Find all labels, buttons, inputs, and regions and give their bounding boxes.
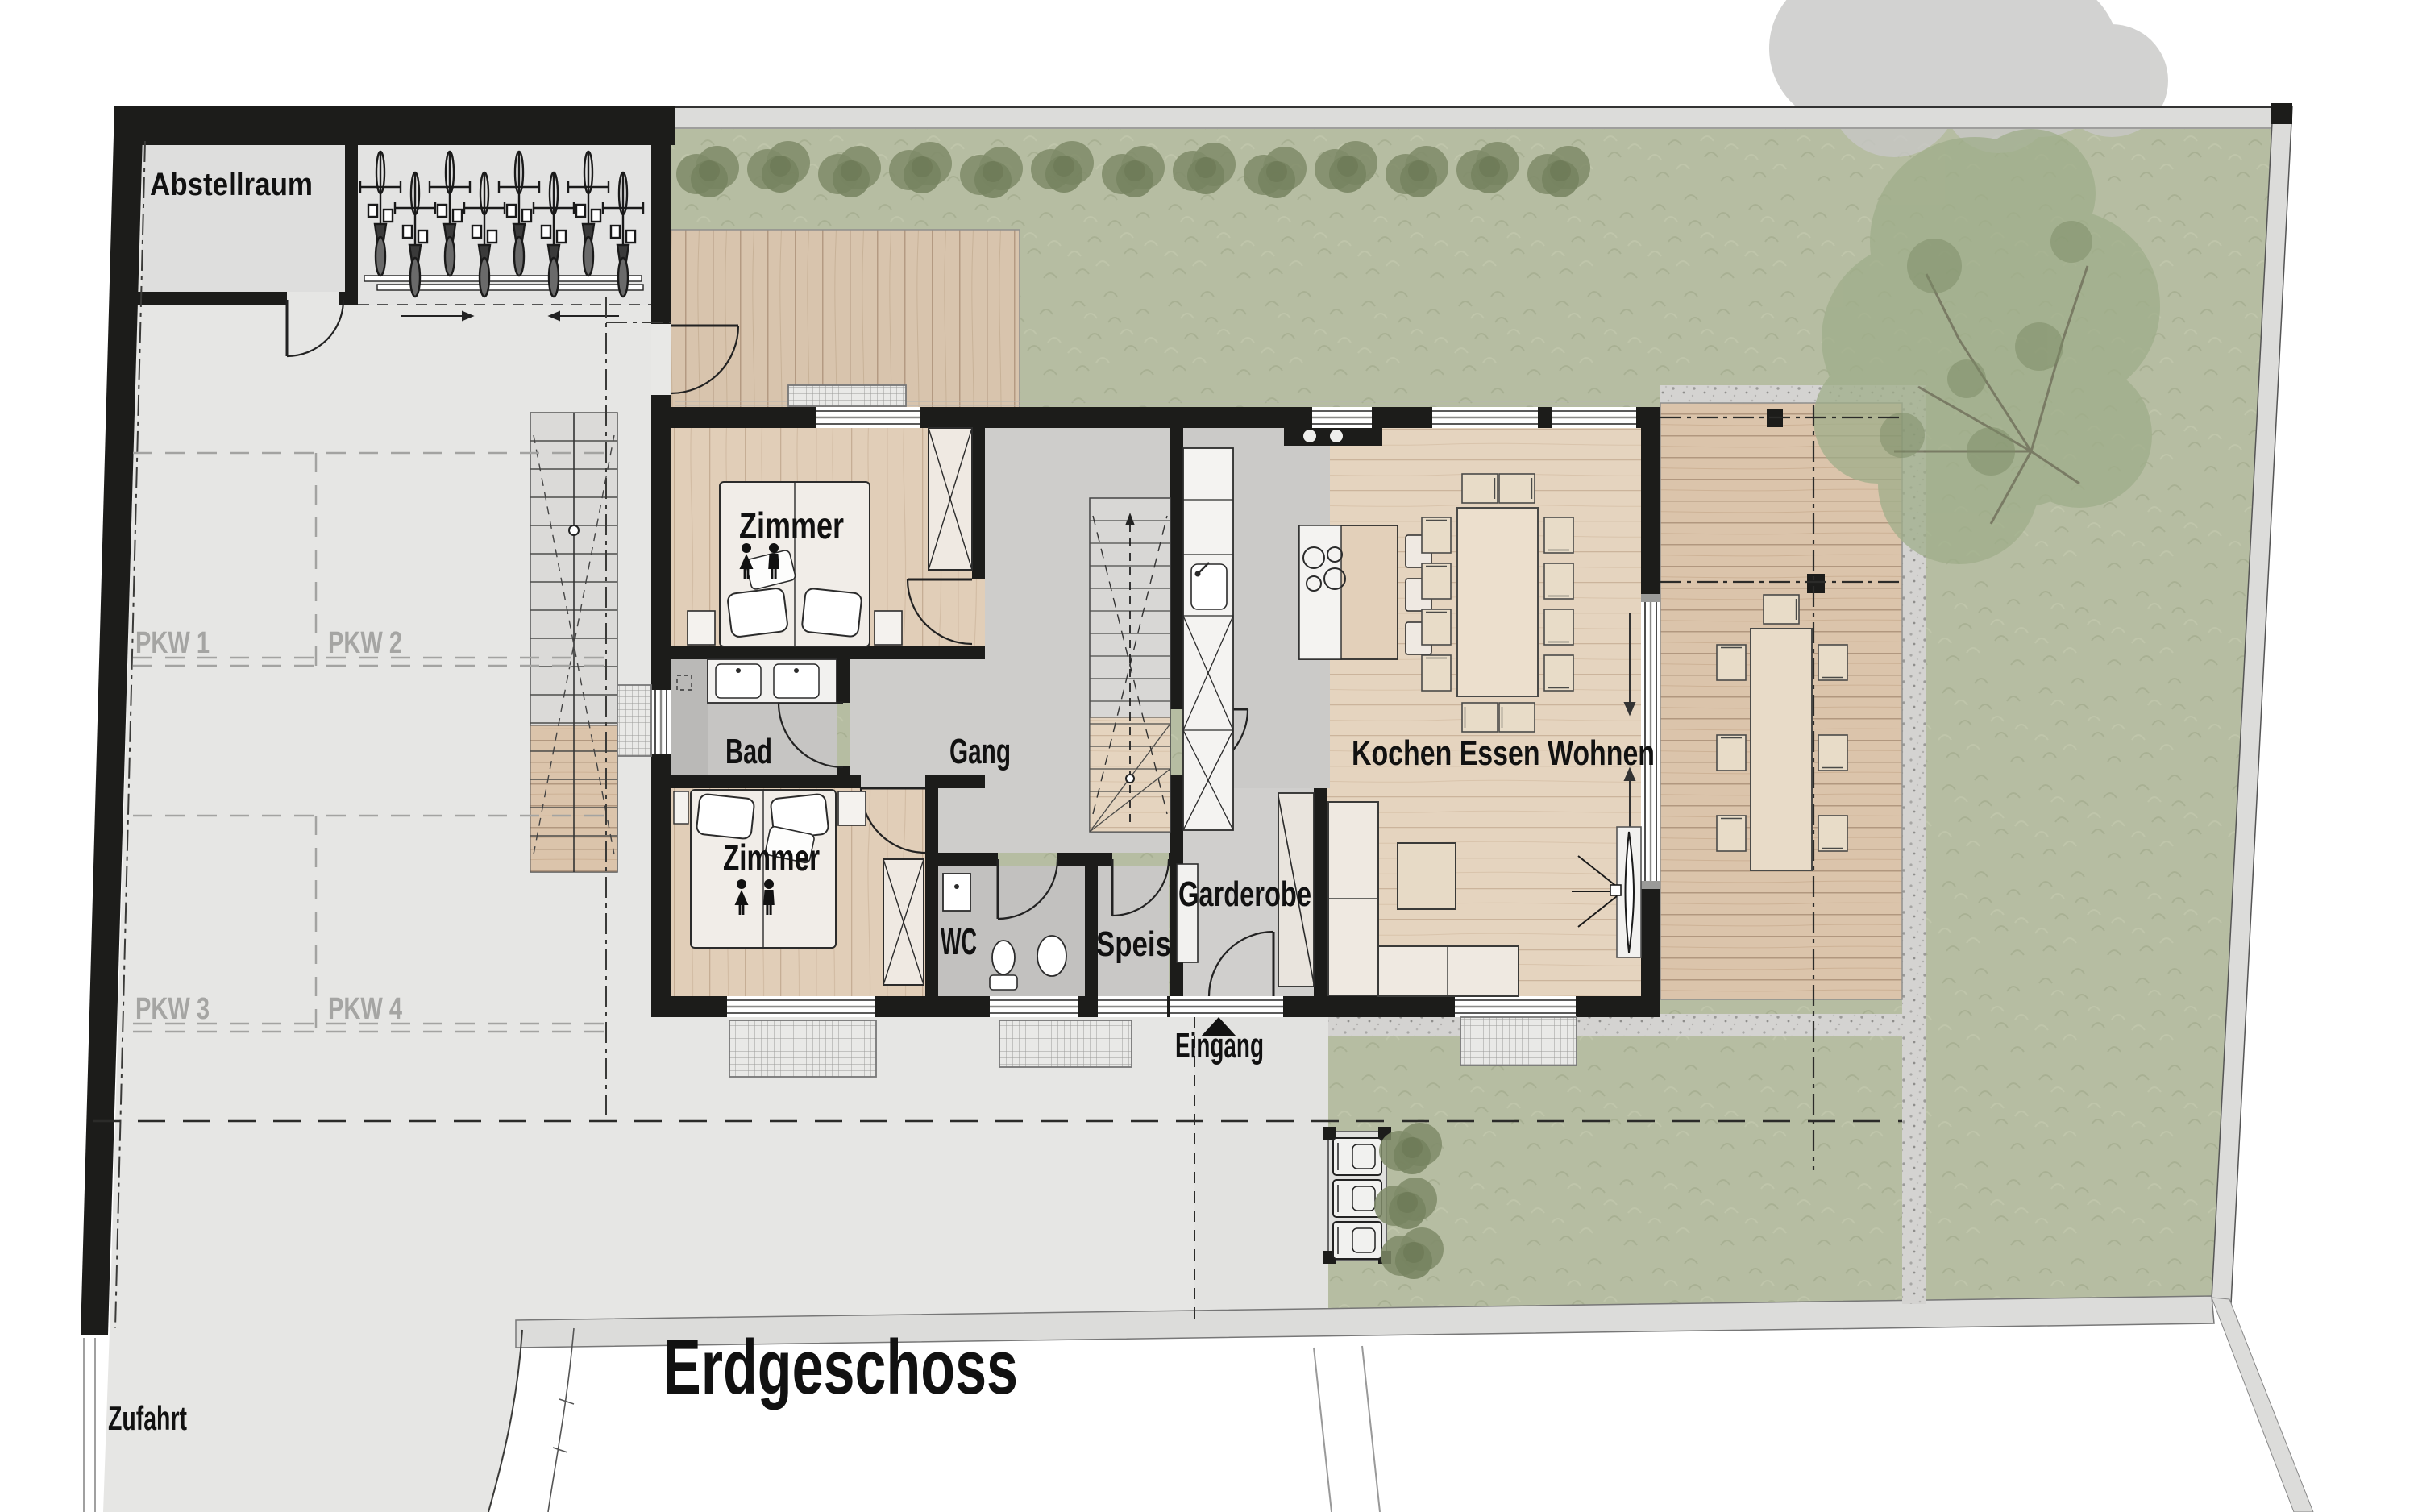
annex-north-wall [114,106,675,145]
page-title: Erdgeschoss [663,1324,1018,1410]
label-zufahrt: Zufahrt [108,1399,187,1437]
exterior-stair [530,413,617,872]
label-abstellraum: Abstellraum [150,167,313,202]
dining-table [1457,508,1538,696]
floorplan-page: Abstellraum Zimmer Zimmer Bad Gang WC Sp… [0,0,2418,1512]
interior-stair [1090,498,1170,832]
east-wall-upper [1641,407,1660,594]
label-gang: Gang [949,732,1011,771]
label-wc: WC [941,920,977,962]
floor-zimmer1-door [972,579,985,646]
label-speis: Speis [1096,924,1171,964]
label-eingang: Eingang [1175,1026,1264,1065]
label-wohnen: Kochen Essen Wohnen [1352,733,1655,773]
kitchen-counter [1183,448,1233,830]
wardrobe-zimmer2 [883,859,924,985]
label-pkw3: PKW 3 [135,992,210,1026]
west-wall [651,106,671,1017]
abstell-east-wall [345,145,358,305]
terrace-table [1751,629,1812,870]
coffee-table [1398,843,1456,909]
wardrobe-zimmer1 [929,428,972,570]
east-wall-lower [1641,889,1660,1017]
boundary-continuation [2212,1298,2313,1512]
floorplan-drawing: Abstellraum Zimmer Zimmer Bad Gang WC Sp… [0,0,2418,1512]
label-pkw4: PKW 4 [328,992,402,1026]
label-bad: Bad [725,732,772,771]
floor-shower [671,659,708,775]
kitchen-sink [1191,564,1227,609]
bushes-near-bins [1374,1123,1444,1279]
kitchen-island [1299,525,1431,659]
label-zimmer2: Zimmer [723,837,820,879]
label-pkw1: PKW 1 [135,626,210,660]
label-pkw2: PKW 2 [328,626,402,660]
label-zimmer1: Zimmer [739,505,844,546]
boundary-corner-post [2271,103,2292,124]
terrace-post-2 [1807,574,1825,593]
label-garderobe: Garderobe [1178,874,1311,914]
entrance-door [1170,996,1283,1017]
